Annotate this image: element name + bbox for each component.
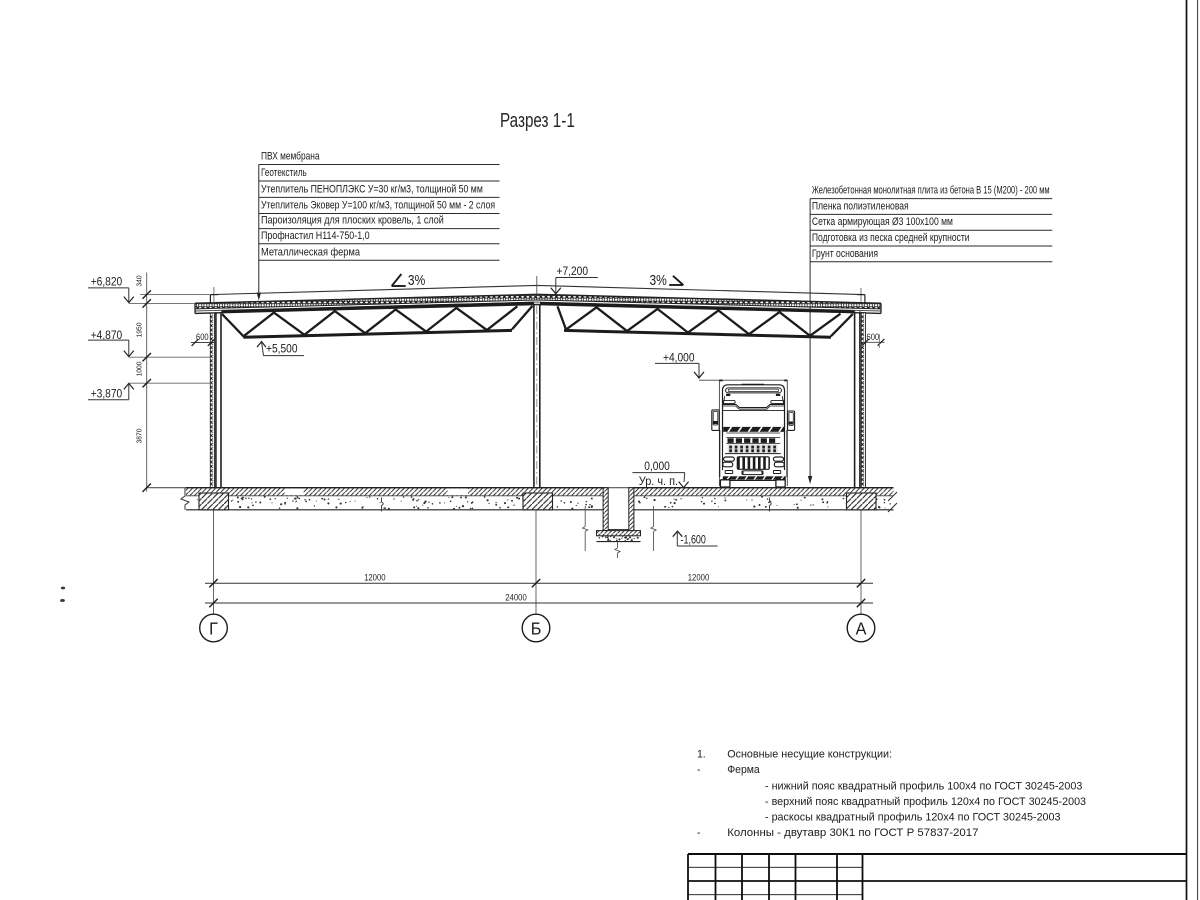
svg-text:340: 340 bbox=[135, 275, 143, 286]
svg-text:1.: 1. bbox=[697, 748, 706, 760]
svg-text:24000: 24000 bbox=[505, 592, 527, 603]
svg-text:- нижний пояс квадратный профи: - нижний пояс квадратный профиль 100х4 п… bbox=[765, 780, 1082, 792]
svg-text:Грунт основания: Грунт основания bbox=[812, 248, 878, 260]
svg-text:+7,200: +7,200 bbox=[557, 265, 588, 278]
svg-text:- верхний пояс квадратный проф: - верхний пояс квадратный профиль 120х4 … bbox=[765, 796, 1086, 808]
svg-text:Профнастил Н114-750-1,0: Профнастил Н114-750-1,0 bbox=[261, 229, 370, 242]
svg-text:Подготовка из песка средней кр: Подготовка из песка средней крупности bbox=[812, 232, 970, 244]
svg-text:Ур. ч. п.: Ур. ч. п. bbox=[639, 476, 678, 488]
svg-text:Г: Г bbox=[209, 619, 218, 639]
svg-text:Основные несущие конструкции:: Основные несущие конструкции: bbox=[727, 748, 892, 760]
svg-text:3%: 3% bbox=[408, 272, 425, 289]
svg-text:600: 600 bbox=[196, 332, 209, 343]
svg-text:3%: 3% bbox=[650, 272, 667, 289]
svg-text:12000: 12000 bbox=[688, 572, 710, 583]
svg-text:-1,600: -1,600 bbox=[681, 535, 707, 547]
svg-text:600: 600 bbox=[867, 331, 880, 342]
svg-text:-: - bbox=[697, 827, 701, 839]
svg-text:1000: 1000 bbox=[135, 362, 143, 377]
svg-text:Разрез 1-1: Разрез 1-1 bbox=[500, 109, 575, 132]
svg-text:+4,000: +4,000 bbox=[663, 352, 694, 365]
svg-text:ПВХ мембрана: ПВХ мембрана bbox=[261, 150, 320, 163]
svg-text:+3,870: +3,870 bbox=[91, 388, 122, 401]
svg-text:Утеплитель ПЕНОПЛЭКС У=30 кг/м: Утеплитель ПЕНОПЛЭКС У=30 кг/м3, толщино… bbox=[261, 183, 483, 195]
svg-text:1950: 1950 bbox=[135, 323, 143, 338]
svg-text:Пароизоляция для плоских крове: Пароизоляция для плоских кровель, 1 слой bbox=[261, 215, 444, 227]
svg-text:А: А bbox=[856, 619, 867, 639]
svg-text:Металлическая ферма: Металлическая ферма bbox=[261, 245, 360, 258]
svg-text:Колонны - двутавр 30К1 по ГОСТ: Колонны - двутавр 30К1 по ГОСТ Р 57837-2… bbox=[727, 827, 978, 839]
svg-text:Геотекстиль: Геотекстиль bbox=[261, 167, 307, 180]
svg-text:3870: 3870 bbox=[135, 429, 143, 444]
svg-text:-: - bbox=[697, 764, 701, 776]
svg-text:Пленка полиэтиленовая: Пленка полиэтиленовая bbox=[812, 200, 909, 212]
svg-text:+5,500: +5,500 bbox=[266, 343, 297, 356]
svg-text:12000: 12000 bbox=[364, 572, 386, 583]
svg-text:0,000: 0,000 bbox=[644, 460, 670, 473]
svg-text:Утеплитель Эковер У=100 кг/м3,: Утеплитель Эковер У=100 кг/м3, толщиной … bbox=[261, 200, 495, 212]
svg-text:Железобетонная монолитная плит: Железобетонная монолитная плита из бетон… bbox=[812, 184, 1050, 197]
svg-text:Б: Б bbox=[531, 619, 542, 639]
svg-text:+6,820: +6,820 bbox=[91, 276, 122, 289]
svg-text:Сетка армирующая Ø3 100х100 мм: Сетка армирующая Ø3 100х100 мм bbox=[812, 216, 953, 228]
svg-text:- раскосы квадратный профиль 1: - раскосы квадратный профиль 120х4 по ГО… bbox=[765, 811, 1061, 823]
svg-text:Ферма: Ферма bbox=[727, 764, 760, 776]
